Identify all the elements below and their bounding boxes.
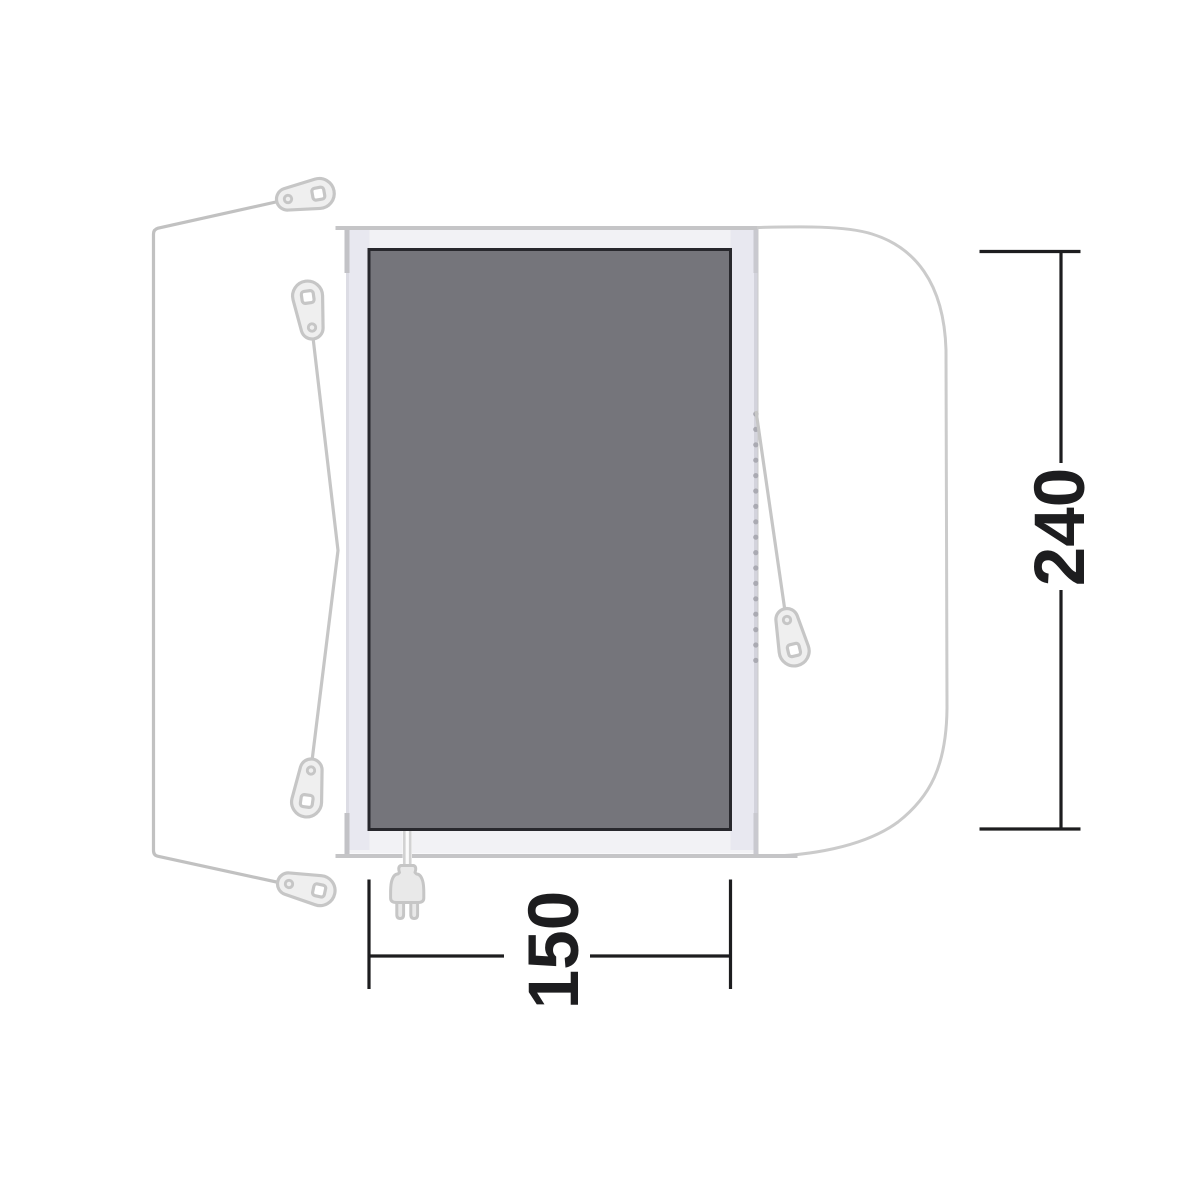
svg-text:240: 240 [1021, 468, 1100, 586]
svg-text:150: 150 [515, 891, 594, 1009]
